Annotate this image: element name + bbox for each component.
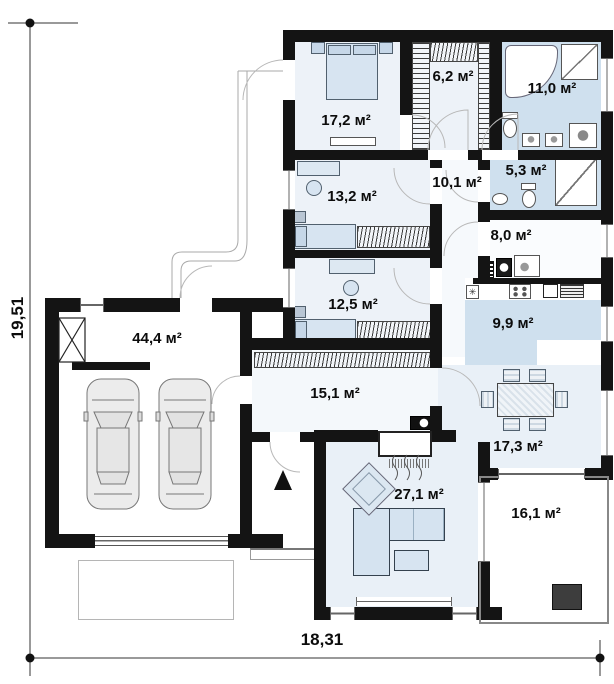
dining-chair-icon (529, 418, 546, 431)
wall (601, 112, 613, 224)
terrace-outline (479, 476, 609, 624)
window (601, 58, 613, 112)
room-label-bedroom-main: 17,2 м² (296, 112, 396, 129)
floor-plan-canvas: ✳ (0, 0, 614, 684)
dining-chair-icon (529, 369, 546, 382)
dimension-width-label: 18,31 (272, 630, 372, 650)
window (80, 298, 104, 312)
wall (228, 534, 283, 548)
desk-icon (297, 161, 340, 176)
room-label-garage: 44,4 м² (107, 330, 207, 347)
window (601, 390, 613, 456)
wall (473, 278, 601, 284)
wall (45, 534, 95, 548)
wall (283, 150, 428, 160)
toilet-icon (521, 183, 536, 190)
wall (478, 202, 490, 222)
wall (252, 432, 270, 442)
pillow-icon (353, 45, 376, 55)
toilet-icon (503, 119, 517, 138)
wall (283, 42, 295, 60)
dining-terrace-window (498, 469, 585, 479)
wall (478, 256, 490, 278)
dining-chair-icon (481, 391, 494, 408)
oven-icon (543, 284, 558, 298)
wall (432, 430, 456, 442)
fridge-icon: ✳ (466, 285, 479, 299)
room-label-living: 27,1 м² (369, 486, 469, 503)
shower-icon (561, 44, 598, 80)
living-big-window (356, 597, 452, 606)
entrance-arrow-icon (274, 470, 292, 490)
wall (314, 607, 330, 620)
terrace-column (552, 584, 582, 610)
wall (601, 30, 613, 58)
wall (490, 42, 502, 150)
wall (45, 298, 59, 548)
dining-chair-icon (555, 391, 568, 408)
fireplace-icon (378, 431, 432, 457)
room-label-bedroom-3: 12,5 м² (303, 296, 403, 313)
dining-chair-icon (503, 369, 520, 382)
pillow-icon (295, 226, 307, 247)
corner-sofa-chaise-icon (353, 508, 390, 576)
wall (490, 210, 601, 220)
wall (601, 258, 613, 306)
fireplace-hearth-icon (389, 459, 429, 468)
nightstand-icon (379, 42, 393, 54)
sink-icon (522, 133, 540, 147)
room-label-terrace: 16,1 м² (486, 505, 586, 522)
wall (518, 150, 601, 160)
room-label-dining: 17,3 м² (468, 438, 568, 455)
wall (240, 350, 252, 376)
floor-hallway-south (442, 278, 465, 357)
sink-icon (545, 133, 563, 147)
driveway-apron (78, 560, 234, 620)
microwave-icon (560, 284, 584, 298)
window (330, 607, 355, 620)
kitchen-stove-icon (509, 284, 531, 299)
wall (355, 607, 452, 620)
wall (283, 30, 613, 42)
wall (430, 350, 442, 368)
washing-machine-icon (569, 123, 597, 148)
room-label-bedroom-2: 13,2 м² (302, 188, 402, 205)
dining-table-icon (497, 383, 554, 417)
closet-corridor-icon (254, 352, 435, 368)
room-label-bathroom-main: 11,0 м² (502, 80, 602, 97)
desk-icon (329, 259, 375, 274)
room-label-bathroom-2: 5,3 м² (476, 162, 576, 179)
window (478, 482, 490, 562)
wall (212, 298, 283, 312)
control-panel-icon (410, 416, 431, 430)
window (601, 306, 613, 342)
side-door-opening (283, 60, 295, 100)
nightstand-icon (311, 42, 325, 54)
wall (283, 210, 295, 268)
sink-icon (492, 193, 508, 205)
boiler-icon (496, 258, 512, 277)
window (283, 268, 295, 308)
garage-door-icon (95, 536, 228, 546)
coffee-table-icon (394, 550, 429, 571)
walkway-path (172, 71, 283, 298)
wall (468, 150, 482, 160)
wall (240, 404, 252, 548)
wall (601, 342, 613, 390)
room-label-utility: 8,0 м² (461, 227, 561, 244)
wall (314, 430, 326, 620)
entrance-step (250, 548, 316, 560)
window (601, 224, 613, 258)
window (283, 170, 295, 210)
chair-icon (343, 280, 359, 296)
wardrobe-shelves-icon (412, 42, 430, 150)
window (452, 607, 477, 620)
pillow-icon (328, 45, 351, 55)
floor-kitchen-2 (465, 340, 537, 368)
closet-bedroom2-icon (357, 226, 430, 248)
dresser-icon (330, 137, 376, 146)
room-label-corridor: 15,1 м² (285, 385, 385, 402)
dining-chair-icon (503, 418, 520, 431)
toilet-icon (502, 112, 518, 119)
wall (300, 432, 314, 442)
wardrobe-shelves-icon (430, 42, 478, 62)
wall (240, 338, 435, 350)
wall (430, 406, 442, 432)
wall (430, 204, 442, 268)
wall (430, 160, 442, 168)
wall (283, 250, 430, 258)
wall-workbench (72, 362, 150, 370)
wardrobe-shelves-icon (478, 42, 490, 150)
dimension-height-label: 19,51 (8, 274, 28, 362)
wall (104, 298, 180, 312)
toilet-icon (522, 190, 536, 208)
utility-sink-icon (514, 255, 540, 277)
wall (240, 312, 252, 338)
room-label-wardrobe: 6,2 м² (403, 68, 503, 85)
room-label-kitchen: 9,9 м² (463, 315, 563, 332)
